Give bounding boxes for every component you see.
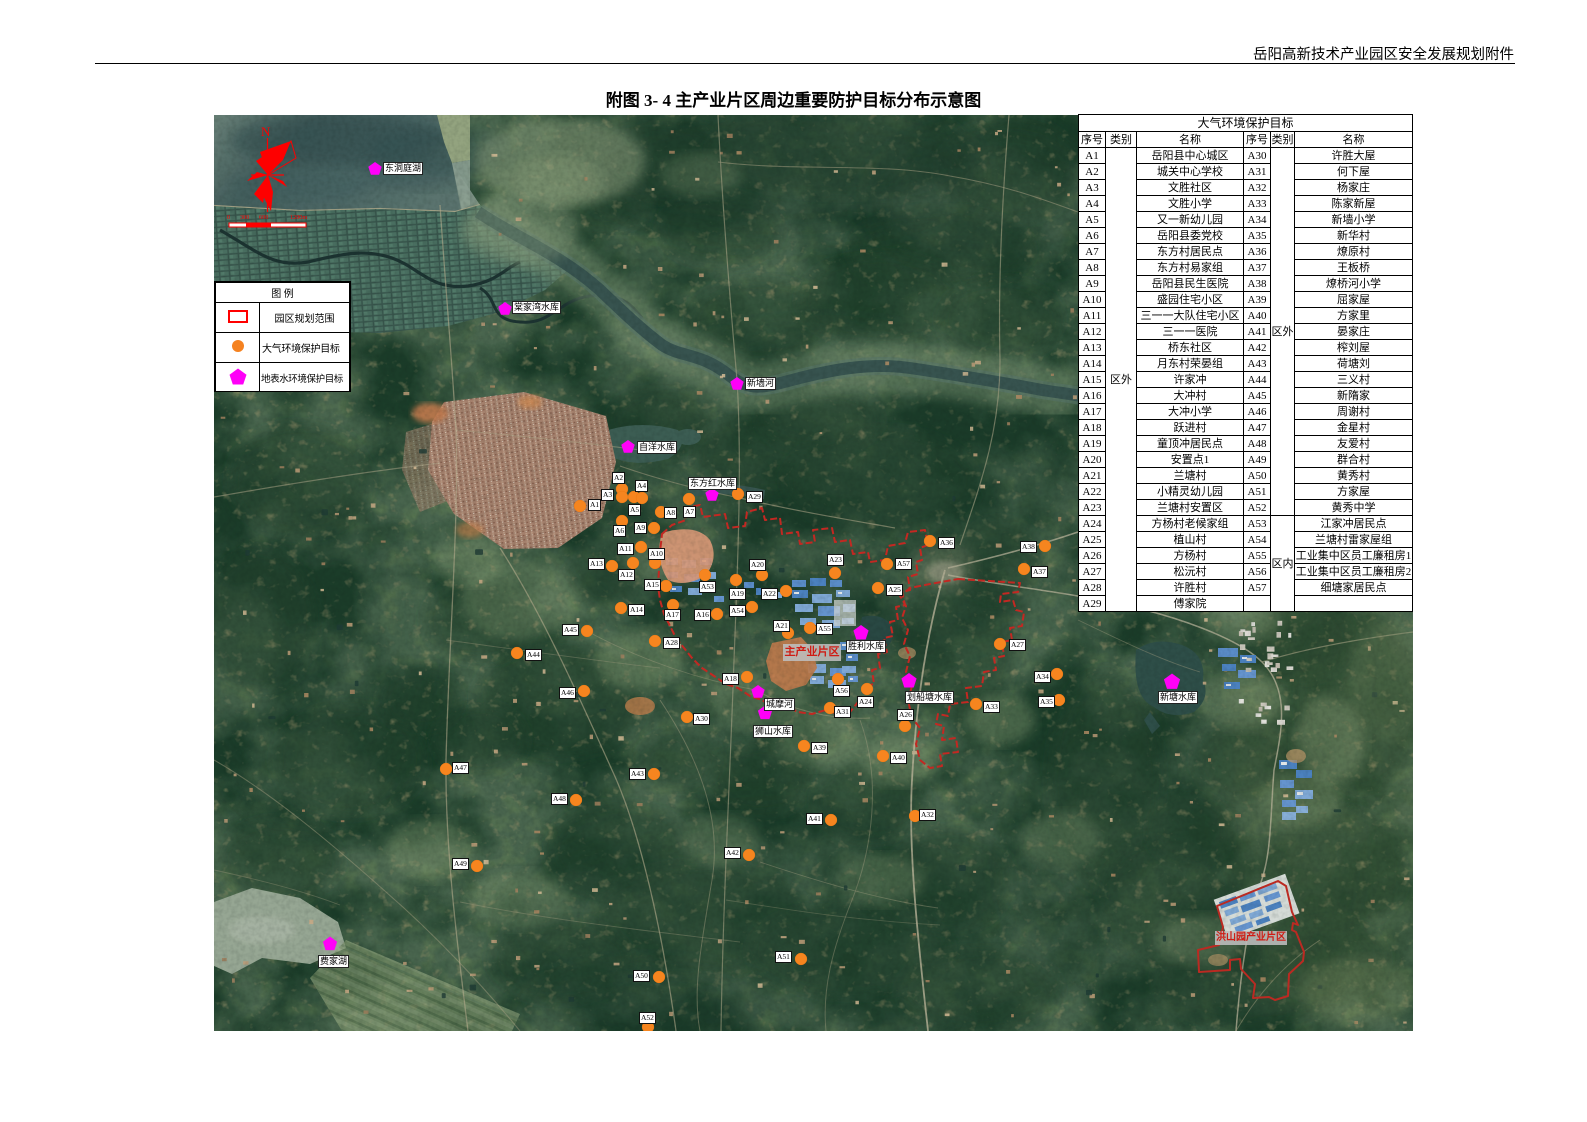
svg-text:600: 600 bbox=[259, 214, 268, 221]
svg-text:N: N bbox=[261, 124, 271, 139]
svg-text:300: 300 bbox=[240, 214, 249, 221]
svg-text:0: 0 bbox=[227, 214, 230, 221]
svg-text:1200m: 1200m bbox=[290, 214, 307, 221]
